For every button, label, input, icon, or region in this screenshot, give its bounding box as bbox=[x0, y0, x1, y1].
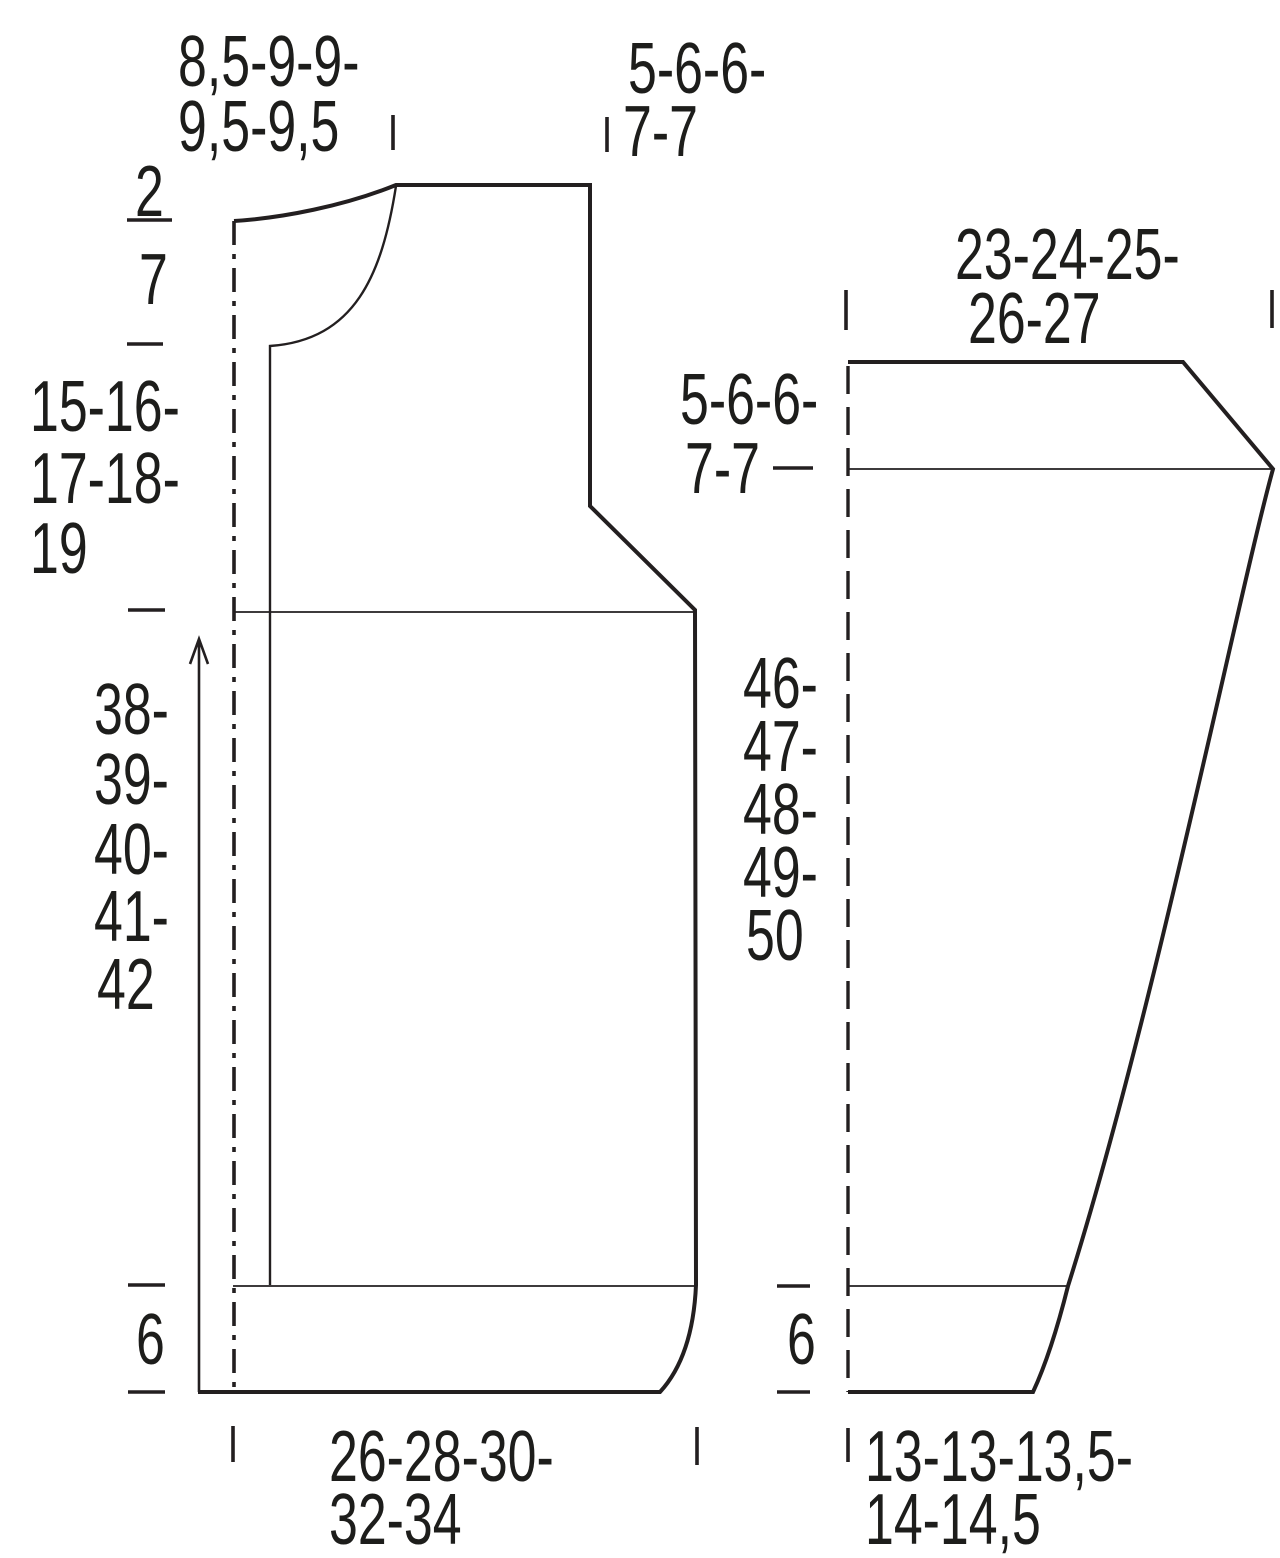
body-ribbing-height: 6 bbox=[136, 1304, 165, 1376]
body-armhole-depth-line3: 19 bbox=[30, 513, 88, 585]
body-neckline-inner-curve bbox=[270, 186, 396, 1285]
body-armhole-depth-line1: 15-16- bbox=[30, 371, 180, 443]
body-side-length-line5: 42 bbox=[97, 949, 155, 1021]
body-neck-width-line2: 9,5-9,5 bbox=[178, 91, 339, 163]
body-neck-depth-lower: 7 bbox=[139, 244, 168, 316]
body-side-length-line2: 39- bbox=[94, 744, 169, 816]
sleeve-piece-outline bbox=[848, 362, 1273, 1392]
knit-direction-arrow-icon bbox=[190, 639, 208, 1392]
body-shoulder-width-line2: 7-7 bbox=[623, 96, 698, 168]
body-side-length-line3: 40- bbox=[94, 814, 169, 886]
schematic-page: 8,5-9-9- 9,5-9,5 5-6-6- 7-7 2 7 15-16- 1… bbox=[0, 0, 1280, 1558]
body-side-length-line4: 41- bbox=[94, 881, 169, 953]
body-armhole-depth-line2: 17-18- bbox=[30, 443, 180, 515]
body-bottom-width-line2: 32-34 bbox=[329, 1484, 462, 1556]
body-piece-outline bbox=[198, 185, 696, 1392]
sleeve-cuff-width-line2: 14-14,5 bbox=[865, 1484, 1041, 1556]
sleeve-length-line5: 50 bbox=[746, 900, 804, 972]
sleeve-ribbing-height: 6 bbox=[787, 1304, 816, 1376]
sleeve-cap-height-line2: 7-7 bbox=[685, 433, 760, 505]
sleeve-cap-height-line1: 5-6-6- bbox=[680, 364, 818, 436]
body-neck-depth-upper: 2 bbox=[135, 156, 164, 228]
body-side-length-line1: 38- bbox=[94, 674, 169, 746]
sleeve-top-width-line2: 26-27 bbox=[968, 283, 1101, 355]
